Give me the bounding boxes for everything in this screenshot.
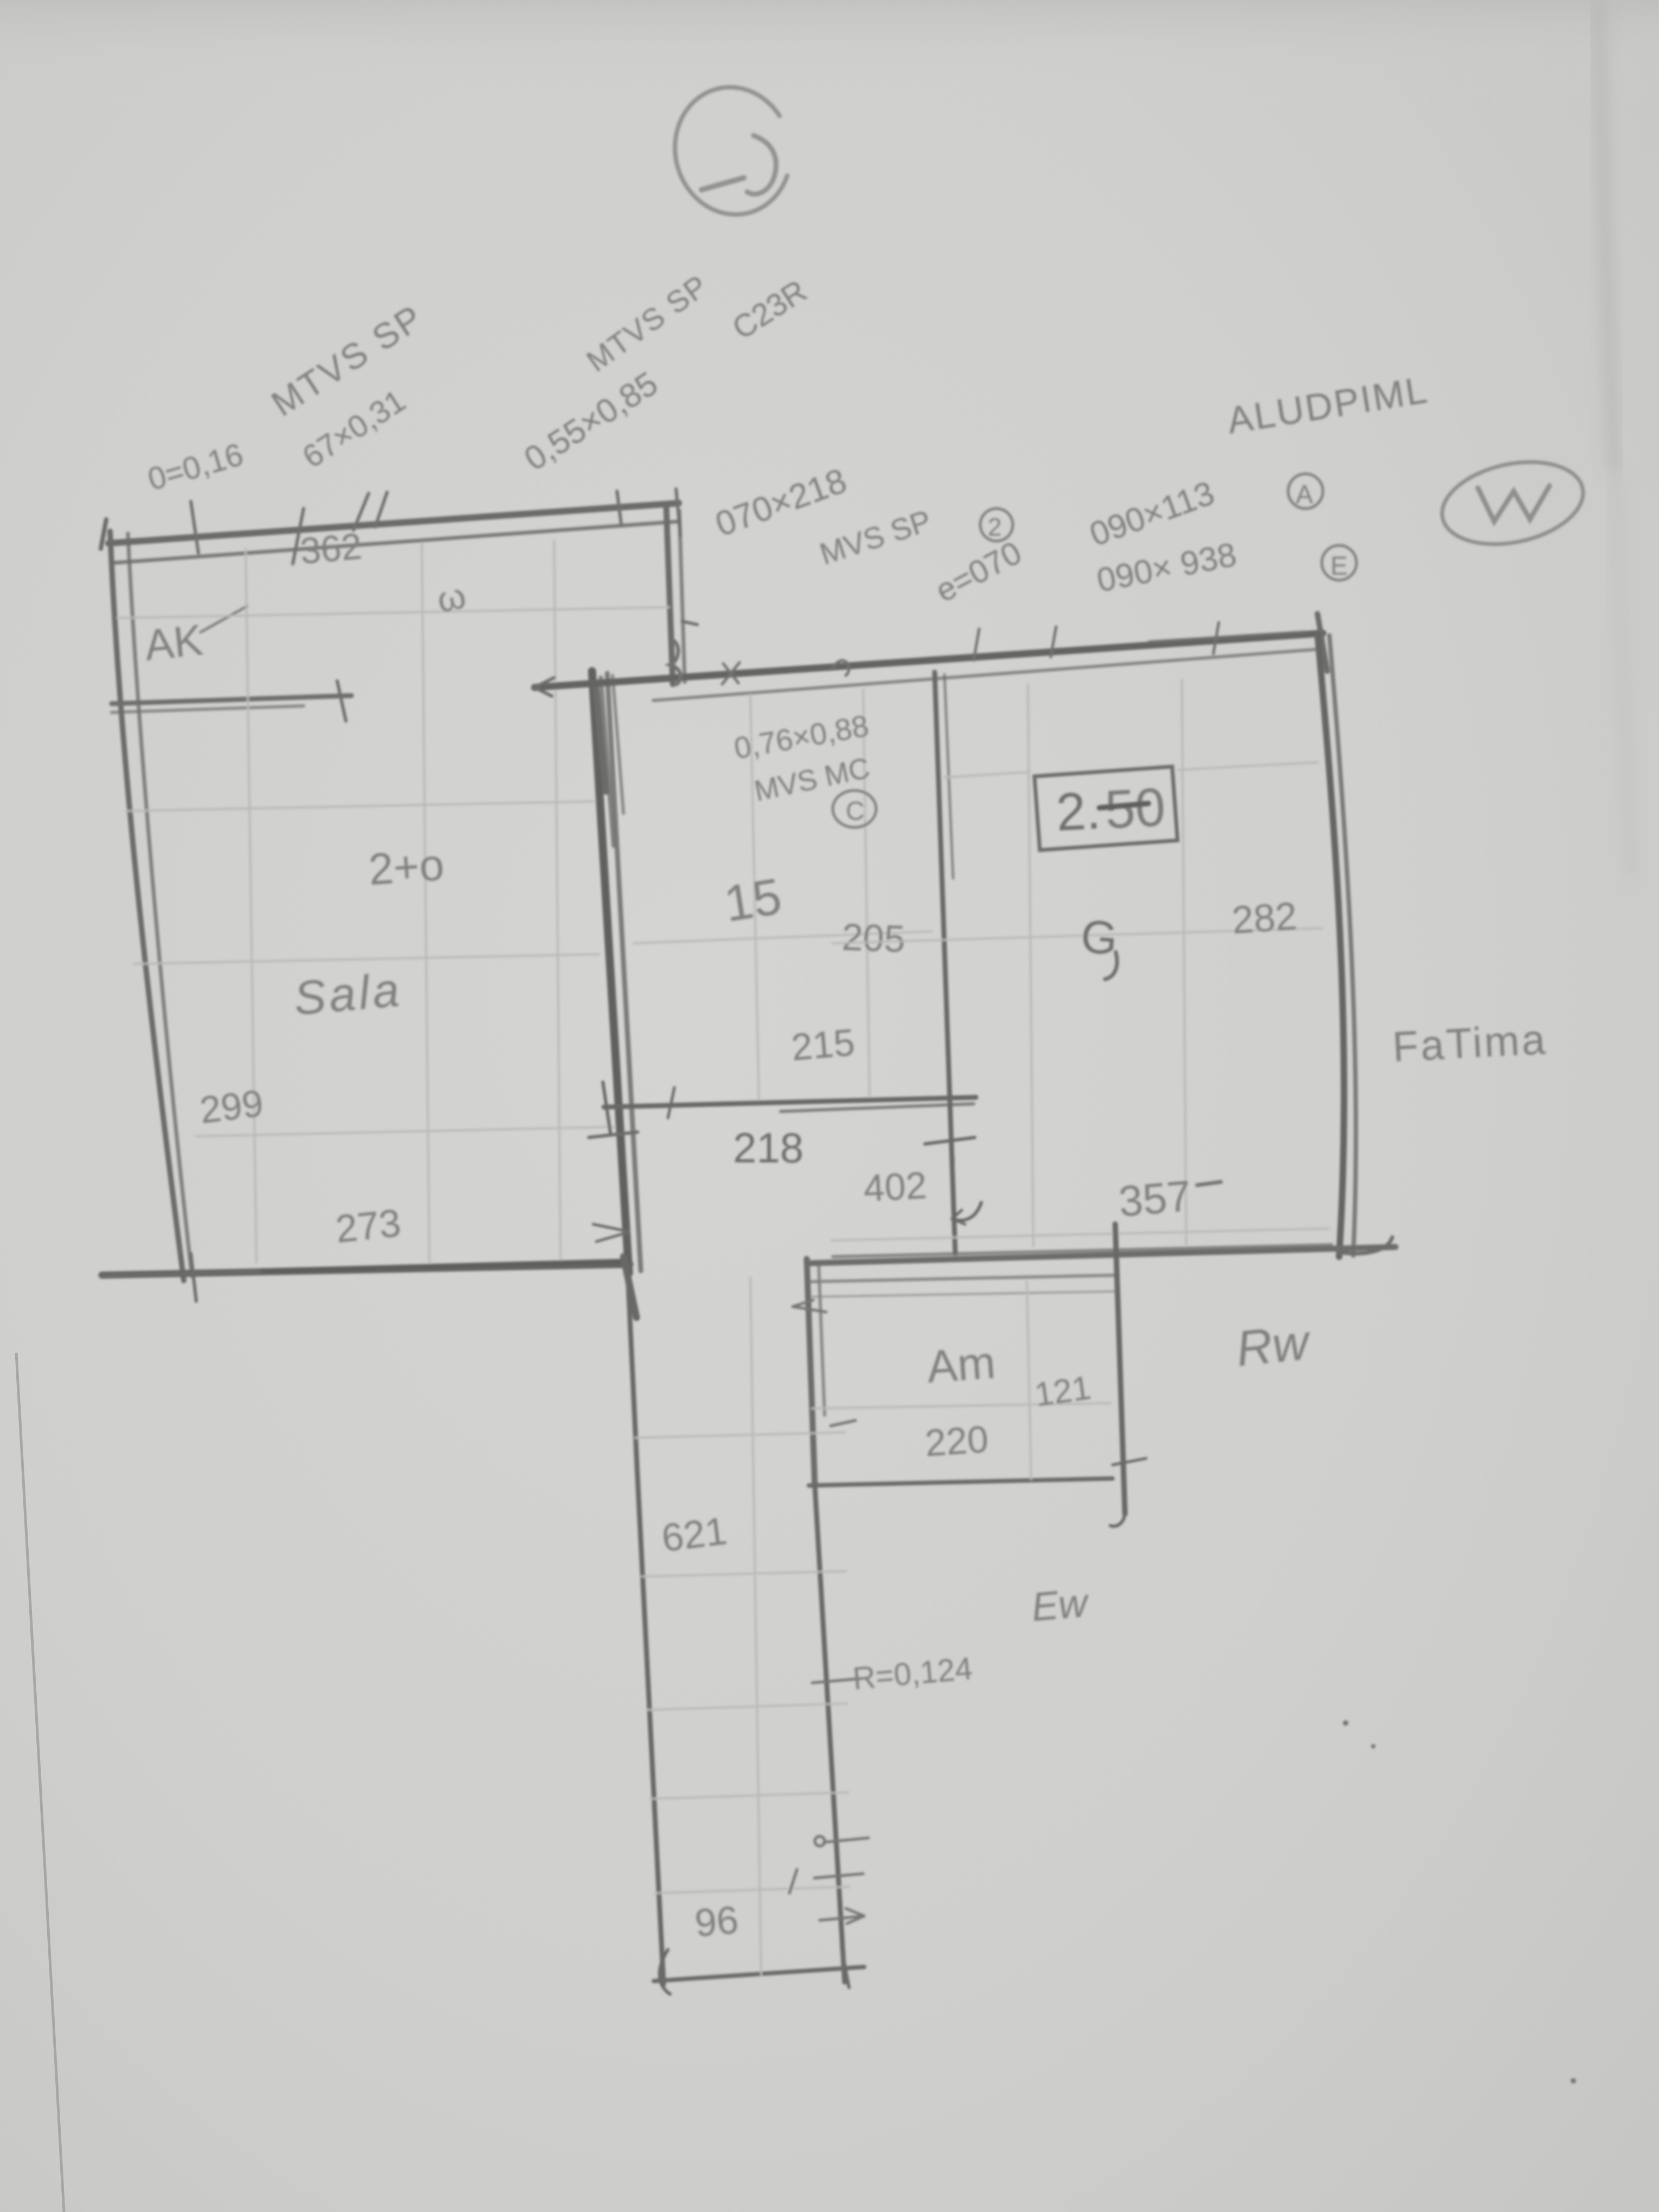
svg-text:2.: 2.	[1054, 780, 1102, 842]
svg-text:205: 205	[841, 916, 905, 960]
svg-text:402: 402	[863, 1164, 928, 1210]
svg-text:Ew: Ew	[1030, 1580, 1091, 1630]
svg-text:621: 621	[659, 1509, 729, 1560]
svg-text:121: 121	[1032, 1369, 1093, 1414]
svg-text:E: E	[1330, 552, 1348, 581]
svg-text:218: 218	[733, 1124, 803, 1172]
svg-text:A: A	[1296, 480, 1313, 509]
svg-text:2: 2	[988, 513, 1002, 541]
svg-text:15: 15	[721, 867, 786, 933]
svg-text:Am: Am	[925, 1336, 997, 1392]
svg-text:Sala: Sala	[292, 962, 404, 1025]
svg-text:357: 357	[1117, 1172, 1193, 1226]
svg-text:G: G	[1079, 910, 1119, 964]
svg-text:FaTima: FaTima	[1391, 1015, 1548, 1071]
svg-text:220: 220	[924, 1418, 990, 1464]
svg-text:273: 273	[333, 1201, 403, 1251]
svg-text:299: 299	[197, 1082, 265, 1131]
svg-text:C: C	[846, 797, 865, 826]
svg-text:2+o: 2+o	[367, 840, 446, 894]
svg-text:AK: AK	[142, 615, 204, 670]
svg-text:96: 96	[693, 1898, 740, 1945]
svg-text:282: 282	[1231, 895, 1298, 942]
svg-text:Rw: Rw	[1233, 1314, 1314, 1377]
svg-text:215: 215	[790, 1021, 857, 1069]
svg-text:362: 362	[299, 525, 364, 572]
